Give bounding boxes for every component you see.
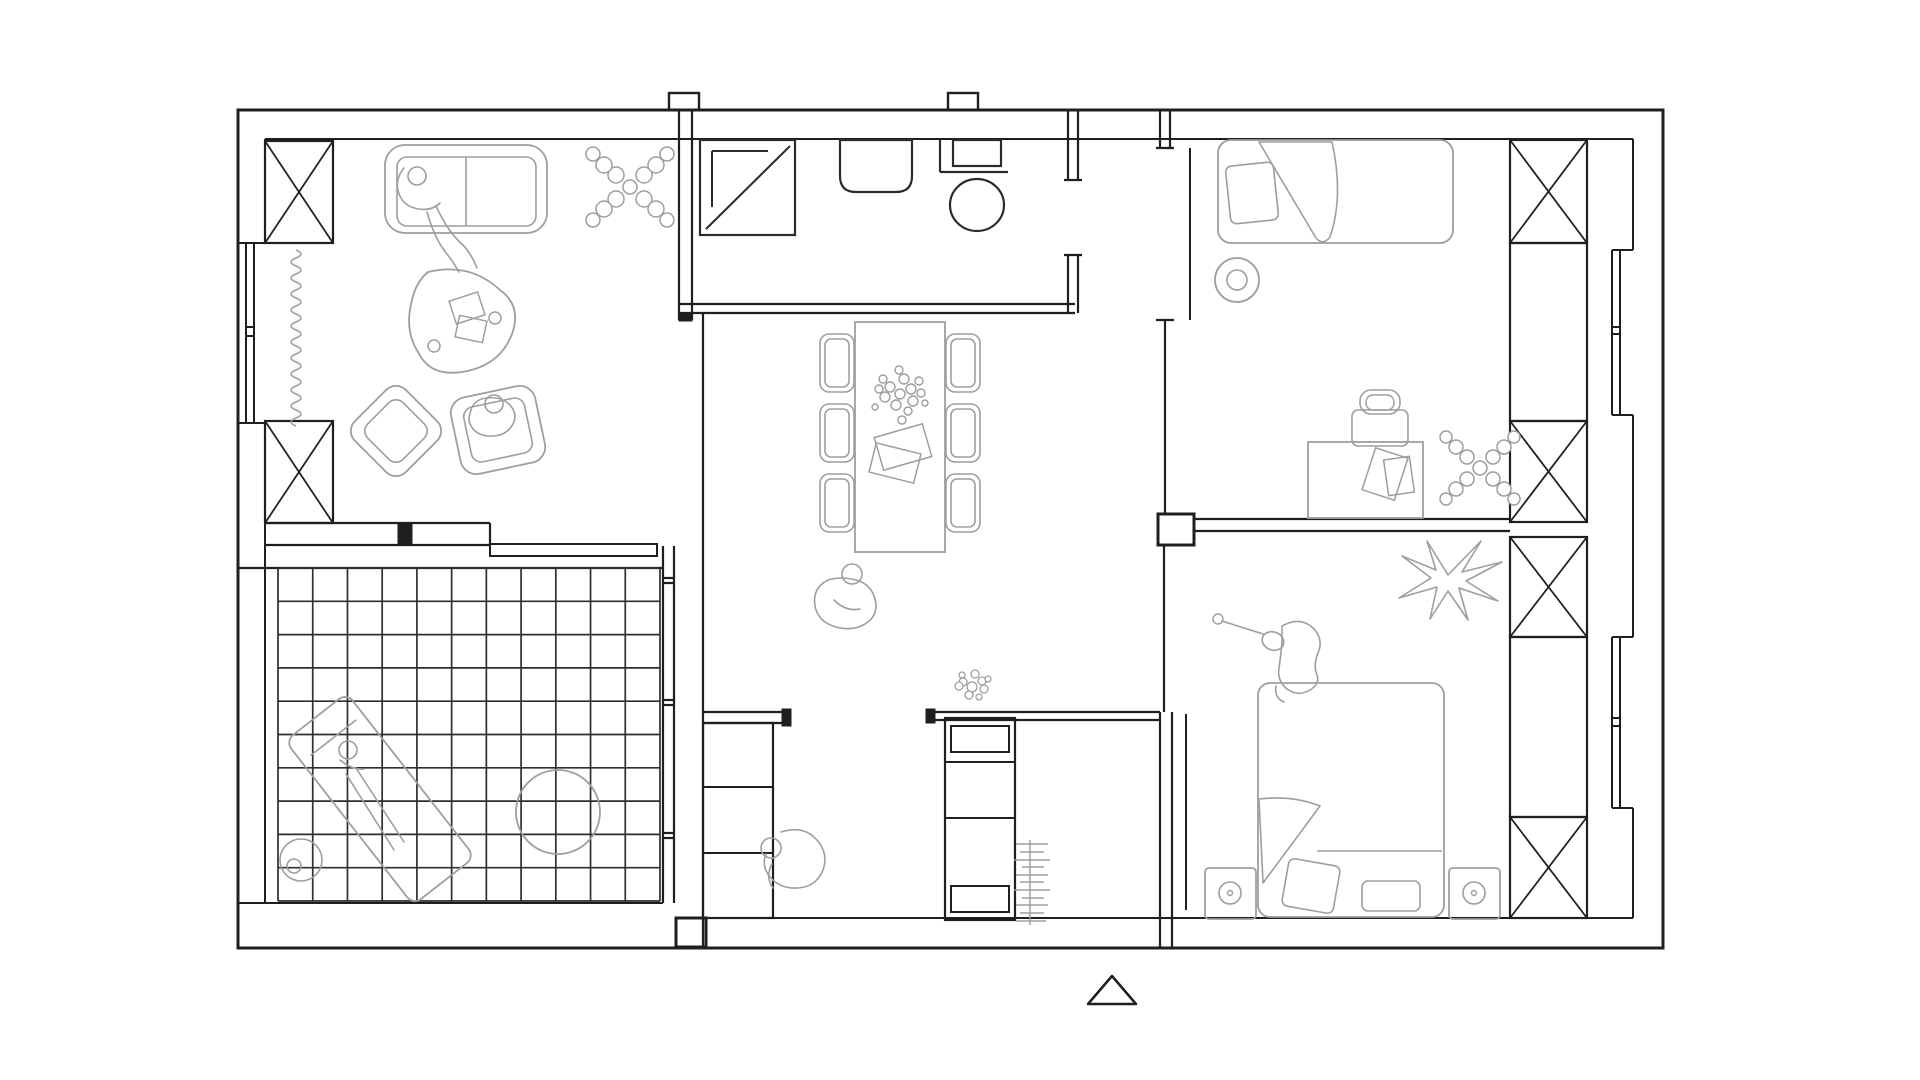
plant-sideboard-leaf-7 xyxy=(976,694,982,700)
closet-xbox-right-2 xyxy=(1510,421,1587,522)
entry-wall-cap-left xyxy=(782,709,791,726)
curtain xyxy=(291,250,301,426)
plant-dining-table-leaf-14 xyxy=(872,404,878,410)
group-symbols xyxy=(1088,976,1136,1004)
plant-bedroom-top-leaf-5 xyxy=(1449,482,1463,496)
nightstand-left-lamp-dot xyxy=(1228,891,1233,896)
closet-xbox-right-1 xyxy=(1510,140,1587,243)
armchair-diamond xyxy=(345,380,447,482)
plant-sideboard-leaf-8 xyxy=(959,672,965,678)
plant-bedroom-top xyxy=(1440,431,1520,505)
wall-center-right-top xyxy=(1156,110,1174,320)
closet-xbox-right-4 xyxy=(1510,817,1587,918)
floor-plan-svg xyxy=(0,0,1920,1080)
bed-single xyxy=(1218,140,1453,243)
dining-chair-left-2 xyxy=(820,404,854,462)
plant-sideboard xyxy=(955,670,991,700)
pouf-inner xyxy=(1227,270,1247,290)
plant-dining-table-leaf-1 xyxy=(906,384,916,394)
toilet-partition xyxy=(940,140,1008,172)
plant-dining-table-leaf-2 xyxy=(885,382,895,392)
entry-wall-cap-right xyxy=(926,709,935,723)
sink xyxy=(840,140,912,192)
wall-junction-box xyxy=(1158,514,1194,545)
plant-living-leaf-12 xyxy=(586,147,600,161)
person-sofa-body xyxy=(397,168,440,209)
group-bathroom xyxy=(700,140,1008,235)
dining-chair-right-3-inner xyxy=(951,479,975,527)
plant-bedroom-top-leaf-6 xyxy=(1440,493,1452,505)
dining-chair-right-1 xyxy=(946,334,980,392)
terrace-window-wall xyxy=(663,546,674,903)
wall-living-bath xyxy=(679,110,692,320)
wall-between-bedrooms xyxy=(1194,519,1510,531)
bed-single-pillow xyxy=(1225,162,1279,225)
entry-sideboard-drawer-bottom xyxy=(951,886,1009,912)
plant-dining-table-leaf-9 xyxy=(904,407,912,415)
sliding-door-jamb xyxy=(398,524,412,544)
plant-dining-table xyxy=(872,366,928,424)
plant-bedroom-top-leaf-9 xyxy=(1508,493,1520,505)
plant-dining-table-leaf-5 xyxy=(908,396,918,406)
plant-dining-table-leaf-0 xyxy=(895,389,905,399)
plant-dining-table-leaf-13 xyxy=(922,400,928,406)
person-bedroom-leg xyxy=(1276,686,1284,702)
closet-xbox-left-bottom xyxy=(265,421,333,523)
dining-chair-right-2-inner xyxy=(951,409,975,457)
dining-chair-left-1 xyxy=(820,334,854,392)
plant-dining-table-leaf-11 xyxy=(915,377,923,385)
plant-dining-table-leaf-4 xyxy=(891,400,901,410)
desk-bag xyxy=(1352,410,1408,446)
top-wall-tab-1 xyxy=(669,93,699,110)
dining-chair-left-2-inner xyxy=(825,409,849,457)
plant-sideboard-leaf-9 xyxy=(985,676,991,682)
plant-sideboard-leaf-6 xyxy=(955,682,963,690)
person-bedroom-arm xyxy=(1222,621,1263,634)
plant-sideboard-leaf-3 xyxy=(971,670,979,678)
terrace-side-table xyxy=(280,839,322,881)
dining-chair-right-1-inner xyxy=(951,339,975,387)
window-left xyxy=(238,243,265,423)
plant-bedroom-top-leaf-11 xyxy=(1449,440,1463,454)
person-sofa-legs xyxy=(427,206,477,272)
bed-double-pillow-2 xyxy=(1362,881,1420,911)
wall-entry-bedroom xyxy=(1160,712,1172,948)
entry-sideboard-shelves xyxy=(945,762,1015,818)
bathroom-right-wall xyxy=(1064,110,1082,313)
plant-bedroom-top-leaf-2 xyxy=(1497,440,1511,454)
dining-chair-right-2 xyxy=(946,404,980,462)
person-entry-head xyxy=(761,838,781,858)
shower-symbol xyxy=(706,146,790,229)
plant-dining-table-leaf-6 xyxy=(880,392,890,402)
sliding-door-terrace xyxy=(490,544,657,556)
plant-bedroom-top-leaf-4 xyxy=(1460,472,1474,486)
group-terrace xyxy=(278,568,660,905)
person-bedroom-hand xyxy=(1213,614,1223,624)
dining-chair-left-3-inner xyxy=(825,479,849,527)
dining-chair-left-3 xyxy=(820,474,854,532)
person-hall-body xyxy=(815,578,877,629)
plant-living-leaf-3 xyxy=(660,147,674,161)
plant-dining-table-leaf-15 xyxy=(898,416,906,424)
bathroom-bottom-wall xyxy=(679,304,1075,313)
wall-living-bath-cap xyxy=(679,314,692,321)
placemat-1 xyxy=(874,424,931,470)
plant-bedroom-top-leaf-10 xyxy=(1460,450,1474,464)
plant-dining-table-leaf-10 xyxy=(895,366,903,374)
plant-bedroom-top-leaf-0 xyxy=(1473,461,1487,475)
terrace-top-wall xyxy=(238,523,663,568)
plant-dining-table-leaf-12 xyxy=(879,375,887,383)
plant-sideboard-leaf-5 xyxy=(980,685,988,693)
armchair-diamond-seat xyxy=(361,396,432,467)
coffee-table-cup-1 xyxy=(428,340,440,352)
person-hall-arm xyxy=(834,600,860,610)
plant-living-leaf-9 xyxy=(660,213,674,227)
plant-dining-table-leaf-8 xyxy=(875,385,883,393)
bed-single-blanket-fold xyxy=(1259,142,1338,242)
entry-threshold-step xyxy=(676,918,706,947)
group-entry xyxy=(703,718,1050,925)
toilet-tank xyxy=(953,140,1001,166)
armchair-2 xyxy=(448,383,548,477)
window-right-top xyxy=(1612,250,1633,415)
group-dining xyxy=(815,322,991,700)
bed-double-blanket-fold xyxy=(1259,798,1320,883)
window-right-bottom xyxy=(1612,637,1633,808)
dining-chair-left-1-inner xyxy=(825,339,849,387)
group-bedroom-top xyxy=(1215,140,1520,518)
north-arrow-triangle xyxy=(1088,976,1136,1004)
group-bedroom-bottom xyxy=(1205,541,1502,919)
group-living-room xyxy=(291,145,674,482)
plant-bedroom-top-leaf-1 xyxy=(1486,450,1500,464)
nightstand-right-lamp xyxy=(1463,882,1485,904)
coat-rack xyxy=(1014,840,1050,925)
shower-symbol-seg-0 xyxy=(706,146,790,229)
nightstand-left xyxy=(1205,868,1256,919)
terrace-side-table-pot xyxy=(287,859,301,873)
nightstand-right xyxy=(1449,868,1500,919)
floor-plan-page xyxy=(0,0,1920,1080)
plant-dining-table-leaf-3 xyxy=(899,374,909,384)
entry-closet xyxy=(703,723,773,918)
plant-bedroom-top-leaf-8 xyxy=(1497,482,1511,496)
bottom-wall-inner-faces xyxy=(238,903,1633,918)
entry-sideboard-drawer-top xyxy=(951,726,1009,752)
terrace-round-table xyxy=(516,770,600,854)
plant-dining-table-leaf-7 xyxy=(917,389,925,397)
plant-living-leaf-0 xyxy=(623,180,637,194)
plant-living xyxy=(586,147,674,227)
coffee-table xyxy=(409,269,515,372)
top-wall-tab-2 xyxy=(948,93,978,110)
pouf xyxy=(1215,258,1259,302)
sun-lounger xyxy=(285,693,475,905)
dining-chair-right-3 xyxy=(946,474,980,532)
person-sofa-head xyxy=(408,167,426,185)
plant-sideboard-leaf-4 xyxy=(965,691,973,699)
plant-bedroom-top-leaf-7 xyxy=(1486,472,1500,486)
coffee-table-cup-2 xyxy=(489,312,501,324)
nightstand-left-lamp xyxy=(1219,882,1241,904)
desk-bag-handle-inner xyxy=(1366,395,1394,410)
wardrobe-right-2 xyxy=(1510,637,1587,817)
closet-xbox-right-3 xyxy=(1510,537,1587,637)
closet-xbox-left-top xyxy=(265,141,333,243)
plant-living-leaf-6 xyxy=(586,213,600,227)
sun-lounger-headrest xyxy=(311,720,357,756)
nightstand-right-lamp-dot xyxy=(1472,891,1477,896)
bed-double-pillow-1 xyxy=(1281,858,1341,914)
plant-bedroom-top-leaf-12 xyxy=(1440,431,1452,443)
dining-table xyxy=(855,322,945,552)
desk-paper-2 xyxy=(1384,456,1415,495)
plant-bedroom-top-leaf-3 xyxy=(1508,431,1520,443)
wardrobe-right-1 xyxy=(1510,243,1587,421)
plant-starburst xyxy=(1399,541,1502,620)
person-lounger-body xyxy=(340,760,404,850)
toilet-bowl xyxy=(950,179,1004,231)
